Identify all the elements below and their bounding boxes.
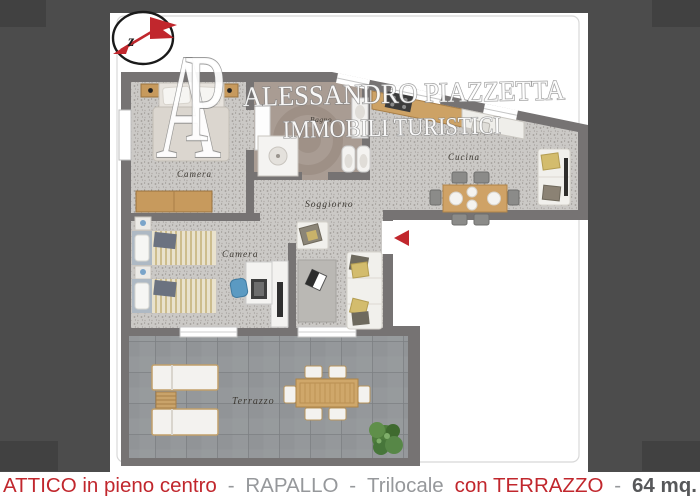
watermark-line2: IMMOBILI TURISTICI [283, 112, 502, 144]
listing-image: z Camera Bagno Cucina Soggiorno Camera T… [0, 0, 700, 500]
room-label-soggiorno: Soggiorno [305, 200, 354, 210]
caption-dash-2: - [349, 474, 356, 498]
caption-rapallo: RAPALLO [245, 474, 338, 498]
watermark-line1: ALESSANDRO PIAZZETTA [242, 75, 565, 113]
compass-letter: z [127, 33, 135, 50]
caption-bar: ATTICO in pieno centro - RAPALLO - Trilo… [0, 472, 700, 500]
caption-attico: ATTICO in pieno centro [3, 474, 217, 498]
caption-dash-3: - [614, 474, 621, 498]
caption-size: 64 mq. [632, 474, 697, 498]
caption-trilocale: Trilocale [367, 474, 444, 498]
room-label-terrazzo: Terrazzo [232, 396, 275, 407]
room-label-camera2: Camera [222, 250, 259, 260]
floorplan-drawing: z Camera Bagno Cucina Soggiorno Camera T… [0, 0, 700, 500]
watermark-monogram-p: P [184, 30, 226, 168]
caption-dash-1: - [228, 474, 235, 498]
terrace-plant [369, 422, 403, 455]
entrance-arrow-icon [394, 230, 409, 246]
room-label-cucina: Cucina [448, 152, 480, 162]
caption-terrazzo: con TERRAZZO [455, 474, 604, 498]
